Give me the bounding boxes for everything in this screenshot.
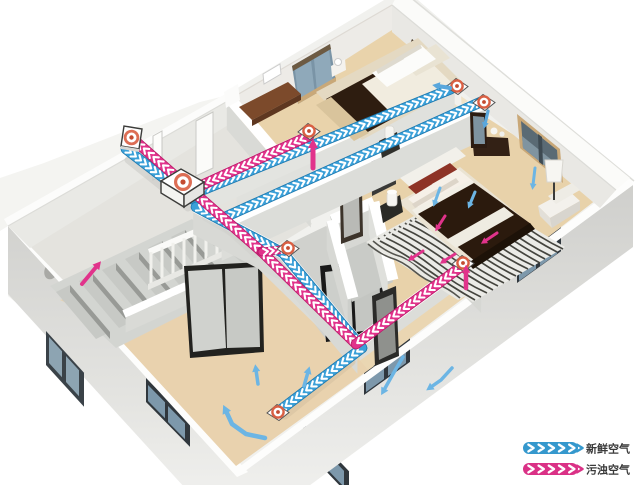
- svg-text:污浊空气: 污浊空气: [586, 463, 630, 477]
- svg-text:新鲜空气: 新鲜空气: [586, 442, 630, 456]
